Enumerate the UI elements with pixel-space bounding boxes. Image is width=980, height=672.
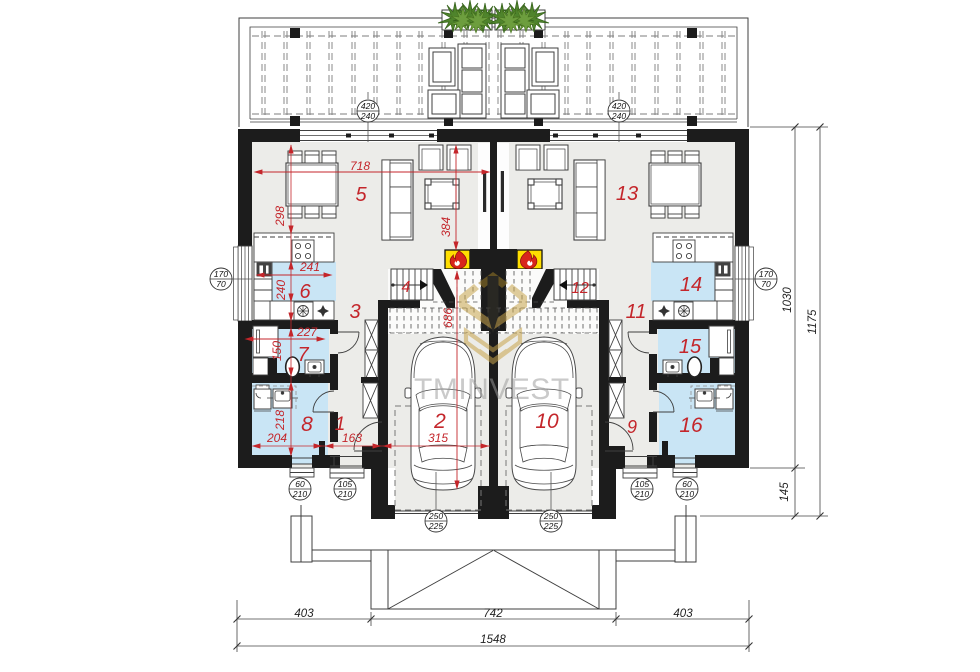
svg-text:150: 150 [270, 341, 284, 361]
svg-text:225: 225 [543, 521, 558, 531]
svg-text:403: 403 [294, 608, 314, 620]
svg-text:TMINVEST: TMINVEST [414, 373, 570, 406]
svg-text:12: 12 [571, 280, 589, 297]
svg-text:5: 5 [355, 184, 367, 206]
svg-text:718: 718 [350, 159, 370, 173]
svg-text:13: 13 [616, 183, 638, 205]
svg-text:4: 4 [402, 279, 411, 296]
svg-text:240: 240 [611, 111, 626, 121]
svg-text:227: 227 [296, 325, 318, 339]
svg-text:1548: 1548 [480, 634, 506, 646]
svg-text:170: 170 [214, 269, 228, 279]
svg-text:16: 16 [679, 414, 703, 437]
svg-text:6: 6 [299, 281, 311, 303]
svg-text:240: 240 [360, 111, 375, 121]
svg-text:105: 105 [338, 479, 352, 489]
svg-text:210: 210 [292, 489, 307, 499]
svg-text:210: 210 [337, 489, 352, 499]
svg-text:210: 210 [634, 489, 649, 499]
svg-text:250: 250 [543, 511, 558, 521]
svg-text:240: 240 [274, 280, 288, 301]
svg-text:3: 3 [349, 301, 360, 323]
svg-text:210: 210 [679, 489, 694, 499]
svg-text:403: 403 [673, 608, 693, 620]
svg-text:163: 163 [342, 431, 362, 445]
svg-text:105: 105 [635, 479, 649, 489]
svg-text:241: 241 [299, 260, 320, 274]
svg-text:315: 315 [428, 431, 448, 445]
svg-text:2: 2 [433, 410, 446, 433]
svg-text:204: 204 [266, 431, 287, 445]
svg-text:70: 70 [761, 279, 771, 289]
svg-text:225: 225 [428, 521, 443, 531]
svg-text:60: 60 [295, 479, 305, 489]
svg-text:15: 15 [679, 336, 702, 358]
svg-text:10: 10 [535, 410, 559, 433]
svg-text:1030: 1030 [782, 287, 794, 313]
svg-text:170: 170 [759, 269, 773, 279]
svg-text:60: 60 [682, 479, 692, 489]
svg-text:420: 420 [612, 101, 626, 111]
svg-text:250: 250 [428, 511, 443, 521]
svg-text:11: 11 [626, 301, 647, 323]
svg-text:9: 9 [627, 417, 637, 437]
svg-text:145: 145 [779, 482, 791, 502]
svg-text:742: 742 [483, 608, 503, 620]
svg-text:218: 218 [273, 410, 287, 431]
svg-text:384: 384 [439, 217, 453, 237]
svg-text:8: 8 [301, 413, 313, 436]
svg-text:7: 7 [297, 344, 309, 366]
svg-text:686: 686 [441, 308, 455, 328]
svg-text:14: 14 [680, 274, 702, 296]
svg-text:70: 70 [216, 279, 226, 289]
svg-text:1175: 1175 [807, 309, 819, 334]
svg-text:420: 420 [361, 101, 375, 111]
svg-text:298: 298 [273, 206, 287, 227]
